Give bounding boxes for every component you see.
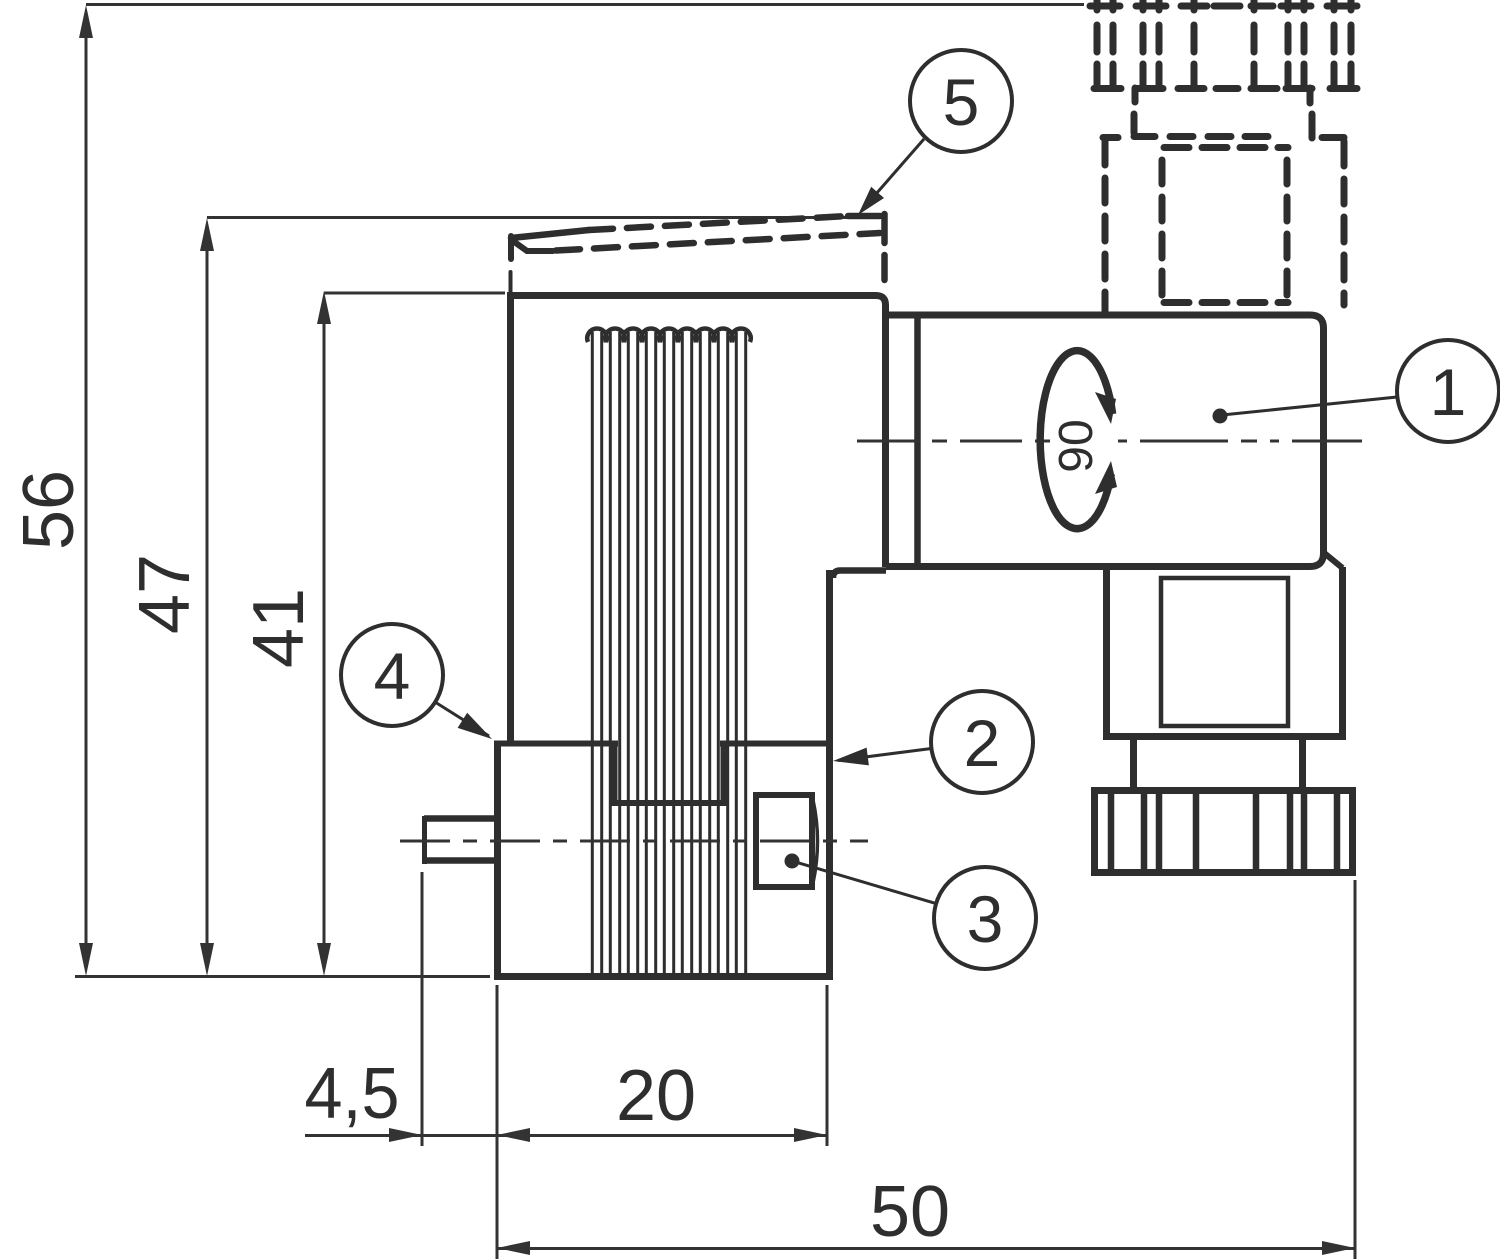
svg-text:4: 4 xyxy=(374,639,411,713)
svg-text:20: 20 xyxy=(616,1056,696,1136)
svg-text:50: 50 xyxy=(870,1172,950,1252)
svg-text:90: 90 xyxy=(1050,419,1103,472)
svg-text:2: 2 xyxy=(964,706,1001,780)
svg-text:1: 1 xyxy=(1430,355,1467,429)
svg-text:4,5: 4,5 xyxy=(305,1054,400,1134)
svg-text:3: 3 xyxy=(967,882,1004,956)
svg-text:56: 56 xyxy=(9,470,89,550)
svg-text:47: 47 xyxy=(125,554,205,634)
svg-text:41: 41 xyxy=(239,588,319,668)
svg-text:5: 5 xyxy=(943,65,980,139)
